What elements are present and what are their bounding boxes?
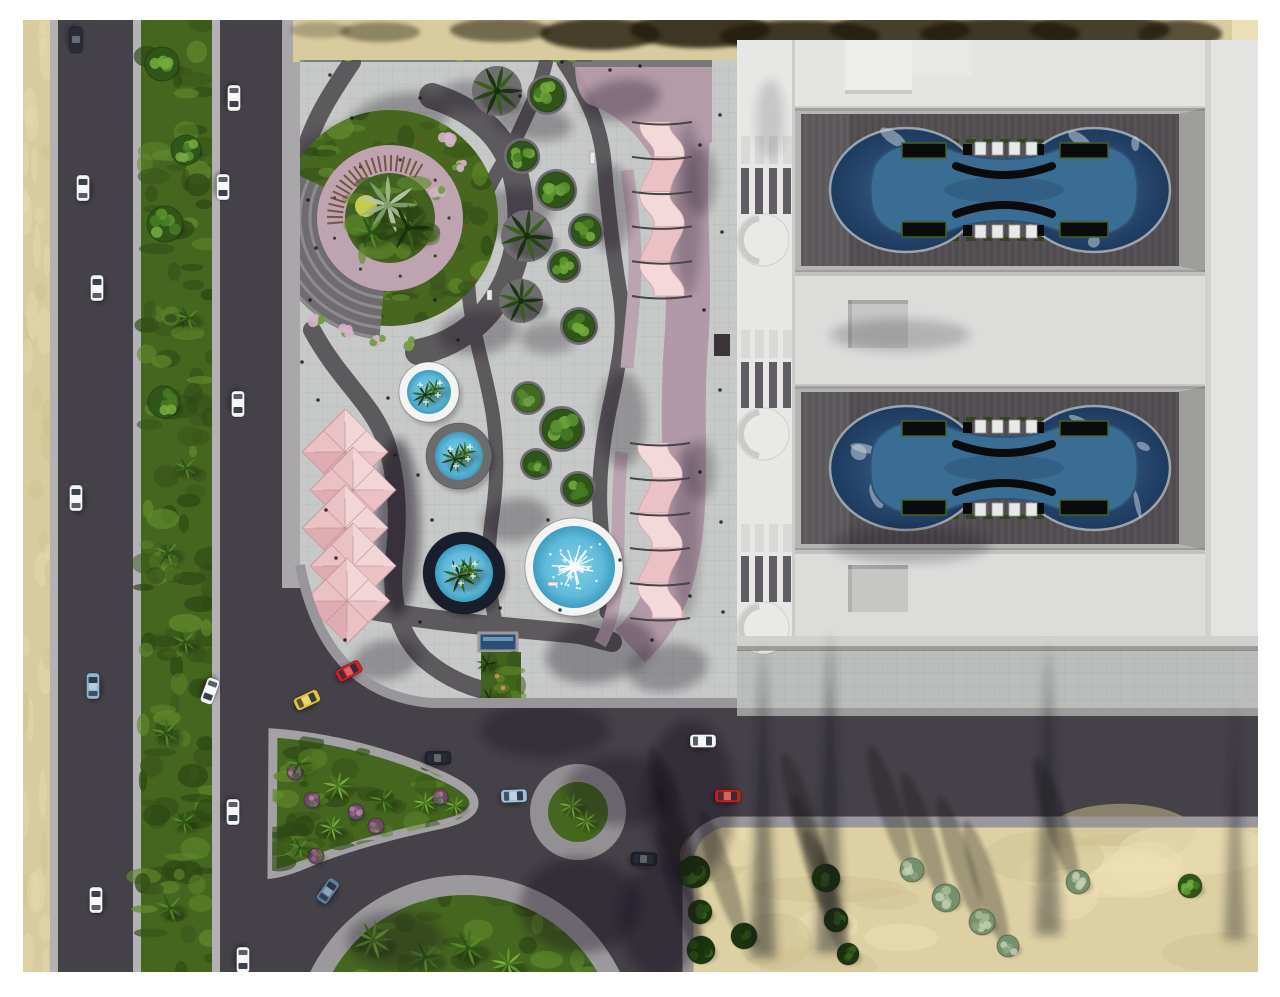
tree-planter [560,307,598,345]
courtyard [795,384,1205,554]
roof-notch [848,565,908,612]
tree-planter [511,381,545,415]
tree-planter [535,169,577,211]
curb [50,20,58,972]
tree-planter [560,471,596,507]
kiosk [714,334,730,356]
tree-planter [520,448,552,480]
cylinder-column [737,214,789,266]
courtyard [795,106,1205,276]
cylinder-column [737,408,789,460]
curb [212,20,220,972]
plaza [268,43,737,723]
courtyard-pool [830,406,1170,530]
west-sidewalk [282,20,300,588]
bench [548,582,558,586]
bench [487,290,492,300]
courtyard-pool [830,124,1170,252]
tree-planter [539,406,585,452]
boulevard-strips [17,8,282,984]
tree-planter [527,75,567,115]
bench [590,152,595,164]
content [17,8,1280,997]
pink-canopy-cluster [302,409,419,644]
aerial-rendering [0,0,1280,997]
tree-planter [504,138,540,174]
building [737,40,1258,654]
plaza-inner [268,43,737,723]
tree-planter [547,249,581,283]
tree-planter [568,213,604,249]
site-plan-rendering [0,0,1280,997]
building-sidewalk [737,650,1258,716]
